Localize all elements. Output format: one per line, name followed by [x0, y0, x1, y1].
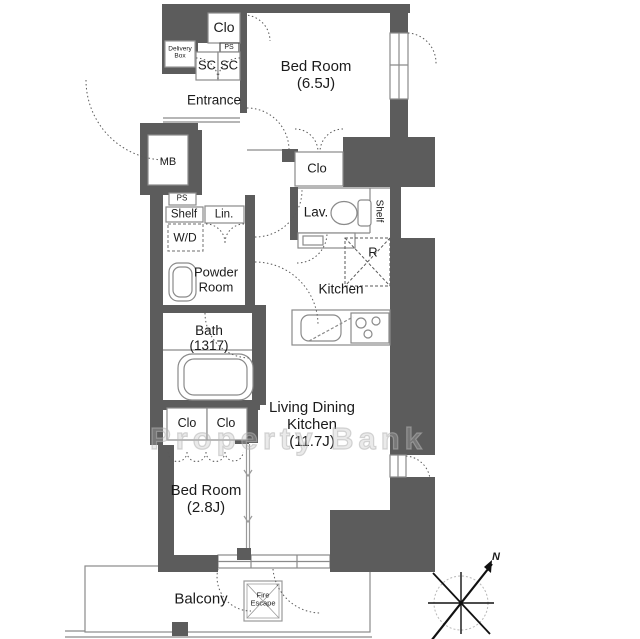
powder-sink-icon [169, 263, 196, 301]
kitchen-sink-icon [301, 315, 341, 341]
ldk-window [390, 455, 406, 477]
ldk-window-arc [406, 456, 430, 479]
stove-icon [351, 313, 389, 343]
bedroom2-label: Bed Room (2.8J) [171, 483, 242, 517]
shoe-closet-2-label: SC [220, 59, 238, 74]
pipe-space-left-label: PS [177, 195, 188, 204]
shoe-closet-1-label: SC [198, 59, 216, 74]
toilet-icon [331, 200, 371, 226]
lavatory-label: Lav. [304, 204, 329, 219]
closet-top-label: Clo [213, 20, 234, 36]
bathtub-icon [163, 350, 253, 400]
bath-label: Bath (1317) [189, 323, 228, 353]
compass-north-label: N [492, 551, 500, 563]
bedroom1-window [390, 33, 408, 99]
powder-room-label: Powder Room [194, 265, 238, 294]
compass-icon [428, 560, 494, 639]
watermark: Property Bank [150, 421, 427, 457]
sliding-door [244, 444, 252, 548]
shelf-right-label: Shelf [373, 200, 384, 223]
linen-label: Lin. [215, 208, 234, 221]
meter-box-label: MB [160, 156, 177, 168]
kitchen-counter [292, 310, 390, 345]
balcony-label: Balcony [174, 592, 227, 609]
entrance-label: Entrance [187, 92, 241, 107]
closet-top-door-arc [244, 15, 270, 41]
closet-bedroom1-label: Clo [307, 162, 327, 177]
bedroom1-window-arc [408, 33, 436, 64]
delivery-box-label: Delivery Box [168, 46, 191, 61]
bedroom1-door-arc [247, 108, 289, 150]
washer-dryer-label: W/D [173, 231, 196, 244]
bedroom1-label: Bed Room (6.5J) [281, 59, 352, 93]
shelf-left-label: Shelf [171, 208, 197, 221]
kitchen-label: Kitchen [318, 281, 363, 296]
fire-escape-label: Fire Escape [250, 592, 275, 609]
floor-plan: Property Bank Clo PS Delivery Box SC SC … [0, 0, 640, 639]
refrigerator-label: R [368, 246, 377, 261]
pipe-space-top-label: PS [224, 44, 233, 52]
floor-plan-drawing [0, 0, 640, 639]
